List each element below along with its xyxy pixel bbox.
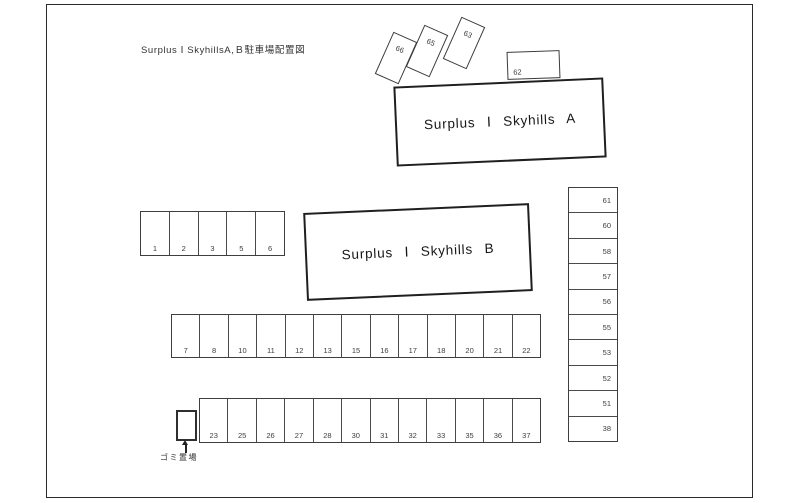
parking-space: 56: [569, 290, 617, 315]
space-number: 56: [603, 297, 617, 306]
space-number: 38: [603, 424, 617, 433]
space-number: 36: [494, 431, 502, 442]
parking-space: 5: [227, 212, 256, 255]
space-number: 65: [414, 37, 436, 73]
parking-space: 35: [456, 399, 484, 442]
parking-space: 25: [228, 399, 256, 442]
space-number: 60: [603, 221, 617, 230]
building-a: Surplus Ⅰ Skyhills A: [393, 77, 606, 166]
parking-space: 36: [484, 399, 512, 442]
space-number: 52: [603, 374, 617, 383]
parking-space: 11: [257, 315, 285, 357]
parking-space-65: 65: [406, 25, 448, 78]
parking-space: 58: [569, 239, 617, 264]
parking-space: 33: [427, 399, 455, 442]
space-number: 10: [238, 346, 246, 357]
space-number: 63: [451, 29, 473, 65]
parking-space: 21: [484, 315, 512, 357]
parking-space: 1: [141, 212, 170, 255]
parking-space: 28: [314, 399, 342, 442]
building-b-label: Surplus Ⅰ Skyhills B: [341, 241, 494, 264]
space-number: 15: [352, 346, 360, 357]
parking-space: 2: [170, 212, 199, 255]
space-number: 30: [352, 431, 360, 442]
space-number: 1: [153, 244, 157, 255]
parking-space: 16: [371, 315, 399, 357]
parking-row-middle: 781011121315161718202122: [171, 314, 541, 358]
parking-space: 12: [286, 315, 314, 357]
space-number: 58: [603, 247, 617, 256]
parking-space: 55: [569, 315, 617, 340]
parking-space: 20: [456, 315, 484, 357]
parking-space: 18: [428, 315, 456, 357]
parking-space: 37: [513, 399, 540, 442]
space-number: 25: [238, 431, 246, 442]
parking-space: 52: [569, 366, 617, 391]
space-number: 18: [437, 346, 445, 357]
space-number: 28: [323, 431, 331, 442]
building-b: Surplus Ⅰ Skyhills B: [303, 203, 533, 301]
space-number: 11: [267, 346, 275, 357]
parking-space: 30: [342, 399, 370, 442]
drawing-sheet: Surplus Ⅰ SkyhillsA,Ｂ駐車場配置図 66 65 63 62 …: [46, 4, 753, 498]
parking-space: 32: [399, 399, 427, 442]
parking-space: 60: [569, 213, 617, 238]
space-number: 16: [380, 346, 388, 357]
space-number: 8: [212, 346, 216, 357]
parking-space: 7: [172, 315, 200, 357]
space-number: 26: [266, 431, 274, 442]
space-number: 6: [268, 244, 272, 255]
parking-space: 23: [200, 399, 228, 442]
space-number: 37: [522, 431, 530, 442]
parking-space: 8: [200, 315, 228, 357]
parking-space: 10: [229, 315, 257, 357]
space-number: 62: [513, 67, 522, 76]
parking-row-top: 12356: [140, 211, 285, 256]
parking-space-62: 62: [507, 50, 561, 80]
parking-space: 13: [314, 315, 342, 357]
space-number: 2: [182, 244, 186, 255]
garbage-area-box: [176, 410, 197, 441]
space-number: 53: [603, 348, 617, 357]
space-number: 17: [409, 346, 417, 357]
space-number: 13: [323, 346, 331, 357]
space-number: 33: [437, 431, 445, 442]
parking-space: 57: [569, 264, 617, 289]
garbage-area-label: ゴミ置場: [160, 452, 198, 463]
parking-space: 31: [371, 399, 399, 442]
parking-space: 27: [285, 399, 313, 442]
space-number: 5: [239, 244, 243, 255]
space-number: 7: [184, 346, 188, 357]
parking-space: 61: [569, 188, 617, 213]
space-number: 20: [465, 346, 473, 357]
space-number: 61: [603, 196, 617, 205]
space-number: 12: [295, 346, 303, 357]
space-number: 3: [210, 244, 214, 255]
parking-space: 38: [569, 417, 617, 441]
parking-space: 6: [256, 212, 284, 255]
parking-space: 53: [569, 340, 617, 365]
space-number: 51: [603, 399, 617, 408]
building-a-label: Surplus Ⅰ Skyhills A: [424, 111, 577, 134]
parking-row-bottom: 232526272830313233353637: [199, 398, 541, 443]
parking-space: 51: [569, 391, 617, 416]
parking-column-right: 61605857565553525138: [568, 187, 618, 442]
parking-space: 17: [399, 315, 427, 357]
parking-space: 22: [513, 315, 540, 357]
parking-space: 15: [342, 315, 370, 357]
space-number: 57: [603, 272, 617, 281]
parking-space: 3: [199, 212, 228, 255]
space-number: 23: [210, 431, 218, 442]
space-number: 66: [383, 44, 405, 80]
page-title: Surplus Ⅰ SkyhillsA,Ｂ駐車場配置図: [141, 42, 305, 56]
space-number: 21: [494, 346, 502, 357]
space-number: 22: [522, 346, 530, 357]
space-number: 55: [603, 323, 617, 332]
space-number: 31: [380, 431, 388, 442]
space-number: 32: [408, 431, 416, 442]
space-number: 27: [295, 431, 303, 442]
space-number: 35: [465, 431, 473, 442]
parking-space-63: 63: [443, 17, 485, 70]
parking-space: 26: [257, 399, 285, 442]
